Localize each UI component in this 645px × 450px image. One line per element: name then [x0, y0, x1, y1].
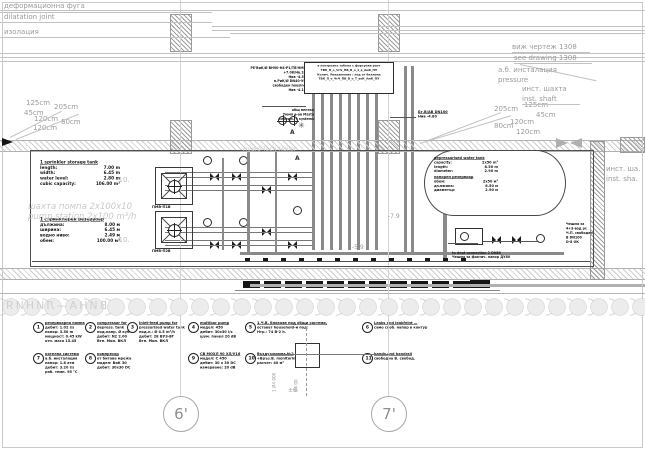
pressure-install-label-bg: а.б. инсталация [498, 66, 557, 74]
see-drawing-label-bg: виж чертеж 1308 [512, 43, 577, 51]
pit-label-1: ПМВ-П1В [152, 205, 192, 214]
construction-line [0, 22, 212, 23]
pump-pit-1 [155, 167, 193, 205]
pump-shaft-watermark: шахта помпа 2x100x10 pump station 2x100 … [28, 202, 136, 222]
right-pipe-label: Бт.В/АВ DN100Нив -4.80 [418, 110, 468, 128]
pump-symbol [168, 224, 181, 237]
deformation-joint-label-en: dilatation joint [4, 13, 55, 21]
note-block: СВ МОХЛ 90 ХЛ/У16модел: С 450дебит: 30 x… [200, 352, 250, 388]
trench-pipe [250, 284, 645, 287]
text-line: ТВК_П_о_ЧгЧ_ПВ_В_о_Т_веК_АмК_ПУ [307, 77, 391, 81]
leader-line [262, 106, 306, 107]
inst-shaft-right-en: inst. sha. [606, 175, 638, 183]
note-number: 7 [33, 353, 44, 364]
construction-line [212, 30, 645, 31]
note-block: Inlet-feed pump forpressurised water tan… [139, 321, 193, 366]
note-line: измерване: 20 dB [200, 366, 250, 371]
construction-line [230, 33, 645, 34]
underline [514, 63, 592, 64]
tag-line [235, 290, 500, 291]
note-line: Втп. Мин. ВКЛ [97, 339, 135, 344]
note-line: Нтр.: 74 В-2 h. [257, 330, 369, 335]
column-hatch [170, 14, 192, 52]
leader-line [390, 117, 416, 118]
pit-label-2: ПМВ-П2В [152, 249, 192, 258]
centerline-h [270, 354, 390, 355]
note-block: резервоарна помпадебит: 1.02 l/sнапор: 3… [45, 321, 89, 366]
note-line: шум. панел 20 dB [200, 335, 250, 340]
hydro-label: Hydro-Tech-Holler [243, 147, 296, 154]
storage-tank-spec-bg: 1 спринклерен резервоар дължина:8.00 мши… [40, 217, 120, 270]
column-hatch [620, 137, 645, 153]
text-line: середн. + systems [262, 117, 314, 121]
spec-row: cubic capacity:106.00 m³ [40, 181, 120, 186]
dimension-label: 120cm [516, 128, 540, 136]
pump-impeller-icon [460, 232, 469, 241]
centerline-v [306, 328, 307, 396]
pipe-line [483, 241, 539, 242]
star-symbol: ✳ [298, 121, 305, 130]
vertical-dim-1: 1 Ø4 000 [272, 373, 277, 392]
note-number: 1 [33, 322, 44, 333]
inst-shaft-label-bg: инст. шахта [522, 85, 567, 93]
floor-connection-label: to dept connection 2 DN80Чешма за фактич… [452, 251, 562, 267]
cad-sheet: hands and handrailсвободна В. свобод.11В… [0, 0, 645, 450]
pipe-legend-box: в контролна табела с форсунки расчТВК_П_… [304, 62, 394, 94]
insulation-label: изолация [4, 28, 39, 36]
note-block: multibar pumpмодел: 450дебит: 30x30 l/sш… [200, 321, 250, 357]
text-line: Нив -4.15 [230, 88, 306, 92]
construction-line [0, 37, 230, 38]
note-line: Втп. Мин. ВКЛ [139, 339, 193, 344]
pump-pit-2 [155, 211, 193, 249]
note-line: раб. темп. 95 °С [45, 370, 89, 375]
dimension-label: 125cm [26, 99, 50, 107]
column-hatch [170, 120, 192, 154]
section-marker-a: A [290, 130, 295, 137]
riser-labels-2: общ вентилТюмп в-ов Мsstaсередн. + syste… [262, 108, 314, 134]
spec-row: diameter:2.90 m [434, 169, 498, 173]
detail-square [295, 343, 320, 368]
dimension-label: 120cm [510, 118, 534, 126]
construction-line [0, 10, 645, 11]
construction-line [212, 26, 645, 27]
note-block: compressor fordepress. tankпод.напр. Ø к… [97, 321, 135, 366]
dimension-label: 205cm [494, 105, 518, 113]
level-mark: -10. [116, 236, 130, 244]
joint-arrow-icon [2, 138, 13, 146]
inst-shaft-label-en: inst. shaft [522, 95, 557, 103]
pipe-line [448, 243, 478, 244]
dilatation-joint-icon [556, 138, 582, 148]
pressure-tank-spec: depressurised water tank capacity:2x50 m… [434, 156, 498, 229]
level-mark: -10. [116, 176, 130, 184]
spec-row: диаметър:2.90 м [434, 188, 498, 192]
grid-axis-6: 6' [163, 396, 199, 432]
note-line: отн. маса 15.45 [45, 339, 89, 344]
spec-row: обем:100.00 м³ [40, 238, 120, 243]
vertical-dim-2: Ø4 00 [294, 379, 299, 392]
pump-symbol [168, 180, 181, 193]
grid-axis-7: 7' [371, 396, 407, 432]
dimension-label: 205cm [54, 103, 78, 111]
underline [522, 104, 580, 105]
deformation-joint-label-bg: деформационна фуга [4, 2, 85, 10]
level-59: -5.9 [352, 245, 364, 252]
see-drawing-label-en: see drawing 1308 [514, 54, 577, 62]
level-79: -7.9 [388, 214, 400, 221]
inst-shaft-right-bg: инст. ша. [606, 165, 640, 173]
pressure-install-label-en: pressure [498, 76, 528, 84]
dimension-label: 45cm [536, 111, 556, 119]
band-watermark: ВИНА—ЛИНИЯ [4, 300, 107, 313]
right-spec-block: Чешма за4+3-вод pr.Ч.П. свободенВ DN100D… [566, 222, 610, 267]
section-marker-a: A [295, 156, 300, 163]
text-line: D-8 ОК [566, 240, 610, 245]
column-hatch [378, 120, 400, 154]
dimension-label: 45cm [24, 109, 44, 117]
underline [512, 52, 590, 53]
